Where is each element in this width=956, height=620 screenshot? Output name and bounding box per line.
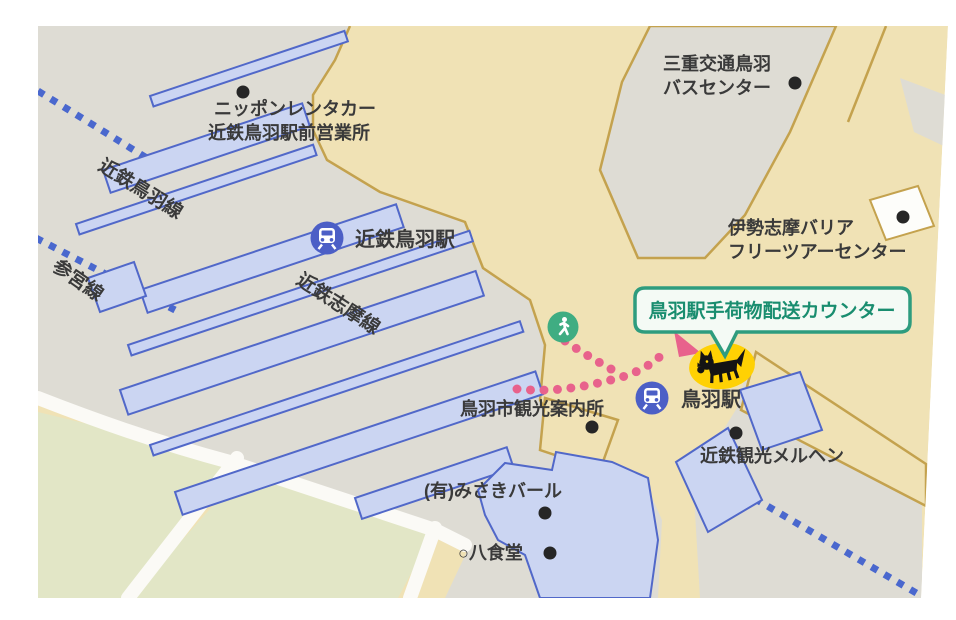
- train-station-icon-kintetsu-toba[interactable]: [311, 222, 344, 255]
- callout-label: 鳥羽駅手荷物配送カウンター: [648, 299, 895, 322]
- label-tourist-info: 鳥羽市観光案内所: [460, 398, 604, 419]
- poi-dot-icon: [730, 427, 743, 440]
- poi-dot-icon: [539, 507, 552, 520]
- label-misaki-bar: (有)みさきバール: [424, 480, 562, 501]
- walk-start-marker[interactable]: [548, 312, 579, 343]
- label-merhen: 近鉄観光メルヘン: [700, 445, 844, 466]
- toba-station-map: ニッポンレンタカー 近鉄鳥羽駅前営業所 三重交通鳥羽 バスセンター 伊勢志摩バリ…: [0, 0, 956, 620]
- poi-dot-icon: [789, 77, 802, 90]
- poi-dot-icon: [544, 547, 557, 560]
- label-bus-center: 三重交通鳥羽: [663, 53, 771, 74]
- label-rental-car-2: 近鉄鳥羽駅前営業所: [208, 122, 370, 143]
- poi-dot-icon: [897, 211, 910, 224]
- label-rental-car: ニッポンレンタカー: [214, 98, 376, 119]
- poi-dot-icon: [586, 421, 599, 434]
- map-canvas: ニッポンレンタカー 近鉄鳥羽駅前営業所 三重交通鳥羽 バスセンター 伊勢志摩バリ…: [0, 0, 956, 620]
- poi-dot-icon: [237, 86, 250, 99]
- label-hachi-shokudo: ○八食堂: [458, 542, 523, 563]
- label-bus-center-2: バスセンター: [663, 78, 771, 98]
- train-station-icon-toba[interactable]: [636, 382, 669, 415]
- label-barrier-free: 伊勢志摩バリア: [727, 217, 854, 238]
- label-kintetsu-toba-station: 近鉄鳥羽駅: [355, 227, 455, 251]
- label-barrier-free-2: フリーツアーセンター: [728, 242, 907, 262]
- label-toba-station: 鳥羽駅: [681, 387, 741, 411]
